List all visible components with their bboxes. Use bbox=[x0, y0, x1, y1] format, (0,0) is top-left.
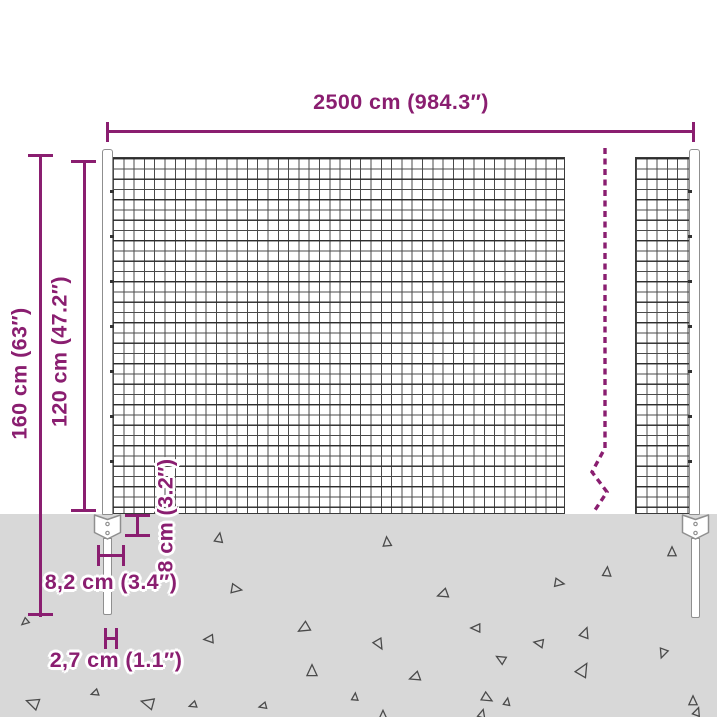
ground-triangle bbox=[90, 689, 99, 697]
dim-total-height-label: 160 cm (63″) bbox=[8, 144, 33, 604]
dim-spike-width-line bbox=[104, 637, 118, 640]
ground-triangle bbox=[692, 706, 702, 716]
ground-triangle bbox=[231, 584, 242, 595]
ground-triangle bbox=[668, 547, 676, 556]
ground-triangle bbox=[689, 696, 697, 705]
dim-width-tick-left bbox=[106, 122, 109, 142]
ground-triangle bbox=[436, 588, 449, 600]
anchor-plate-left bbox=[93, 513, 122, 541]
ground-triangle bbox=[657, 648, 668, 659]
ground-triangle bbox=[25, 695, 40, 709]
mesh-panel-end bbox=[635, 157, 692, 514]
dim-total-height-tick-bottom bbox=[28, 613, 53, 616]
ground-triangle bbox=[20, 618, 30, 627]
ground-triangle bbox=[533, 638, 543, 648]
anchor-plate-right bbox=[681, 513, 710, 541]
dim-plate-height-label: 8 cm (3.2″) bbox=[154, 396, 179, 636]
ground-triangle bbox=[258, 702, 266, 710]
dim-plate-width-line bbox=[97, 554, 125, 557]
dim-plate-height-line bbox=[136, 514, 139, 537]
post-clips-right bbox=[688, 190, 692, 490]
ground-triangle bbox=[352, 693, 359, 701]
ground-triangle bbox=[575, 660, 592, 677]
dim-total-height-line bbox=[39, 155, 42, 617]
ground-triangle bbox=[307, 665, 317, 676]
dim-width-tick-right bbox=[692, 122, 695, 142]
ground-triangle bbox=[481, 692, 494, 705]
dimension-diagram: 2500 cm (984.3″) 160 cm (63″) 120 cm (47… bbox=[0, 0, 717, 717]
ground-triangle bbox=[408, 671, 421, 683]
dim-spike-width-label: 2,7 cm (1.1″) bbox=[0, 648, 236, 673]
mesh-panel-main bbox=[112, 157, 565, 514]
ground-triangle bbox=[555, 578, 565, 588]
dim-mesh-height-line bbox=[83, 161, 86, 512]
dim-plate-width-label: 8,2 cm (3.4″) bbox=[0, 570, 231, 595]
ground-triangle bbox=[296, 621, 311, 635]
ground-triangle bbox=[140, 696, 154, 710]
dim-mesh-height-tick-top bbox=[71, 160, 96, 163]
ground-triangle bbox=[471, 624, 480, 632]
dim-mesh-height-tick-bottom bbox=[71, 509, 96, 512]
ground-spike-right bbox=[691, 538, 700, 618]
ground-triangle bbox=[203, 635, 213, 644]
ground-triangle bbox=[579, 626, 591, 639]
ground-triangle bbox=[494, 653, 506, 665]
ground-triangle bbox=[603, 566, 612, 576]
ground-triangle bbox=[503, 697, 511, 705]
ground-triangle bbox=[382, 536, 391, 546]
dim-width-line bbox=[108, 130, 694, 133]
ground-triangle bbox=[214, 532, 224, 542]
dim-width-label: 2500 cm (984.3″) bbox=[108, 90, 694, 115]
ground-triangle bbox=[379, 710, 386, 717]
ground-triangle bbox=[188, 701, 197, 709]
ground-triangle bbox=[478, 709, 487, 717]
dim-mesh-height-label: 120 cm (47.2″) bbox=[48, 122, 73, 582]
ground-triangle bbox=[373, 638, 386, 651]
post-clips-left bbox=[110, 190, 114, 490]
